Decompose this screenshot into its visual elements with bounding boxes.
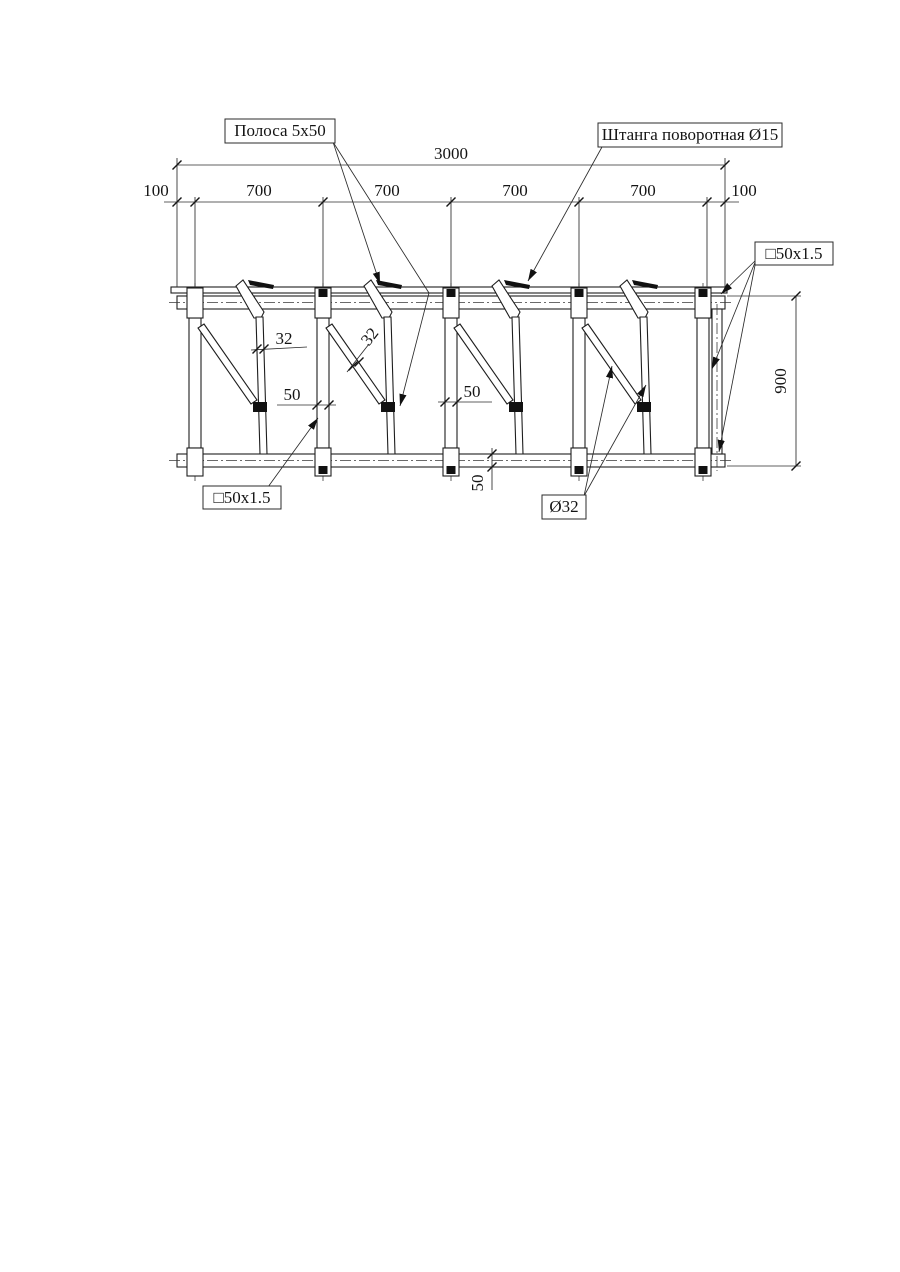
post-2 [315, 283, 331, 481]
dim-post-width-3: 50 [464, 382, 481, 401]
dim-seg-700-1: 700 [246, 181, 272, 200]
dim-rod-width: 32 [276, 329, 293, 348]
post-5 [695, 283, 711, 481]
dim-seg-700-3: 700 [502, 181, 528, 200]
dim-post-width-1: 50 [284, 385, 301, 404]
dim-seg-700-2: 700 [374, 181, 400, 200]
frame-structure [169, 280, 733, 481]
dim-seg-100-left: 100 [143, 181, 169, 200]
dim-brace-width: 32 [357, 324, 382, 349]
callout-square-tube-right: □50x1.5 [765, 244, 822, 263]
post-4 [571, 283, 587, 481]
frame-assembly-drawing: 3000 100 700 700 700 700 100 900 50 32 3… [0, 0, 900, 1272]
drawing-page: 3000 100 700 700 700 700 100 900 50 32 3… [0, 0, 900, 1272]
callout-square-tube-left: □50x1.5 [213, 488, 270, 507]
dim-rail-depth: 50 [468, 475, 487, 492]
dim-seg-700-4: 700 [630, 181, 656, 200]
post-3 [443, 283, 459, 481]
dim-seg-100-right: 100 [731, 181, 757, 200]
callout-rotating-rod: Штанга поворотная Ø15 [602, 125, 778, 144]
dim-total-width: 3000 [434, 144, 468, 163]
dim-height: 900 [771, 368, 790, 394]
callout-rod-diameter: Ø32 [549, 497, 578, 516]
post-1 [187, 283, 203, 481]
callout-strip: Полоса 5x50 [234, 121, 326, 140]
